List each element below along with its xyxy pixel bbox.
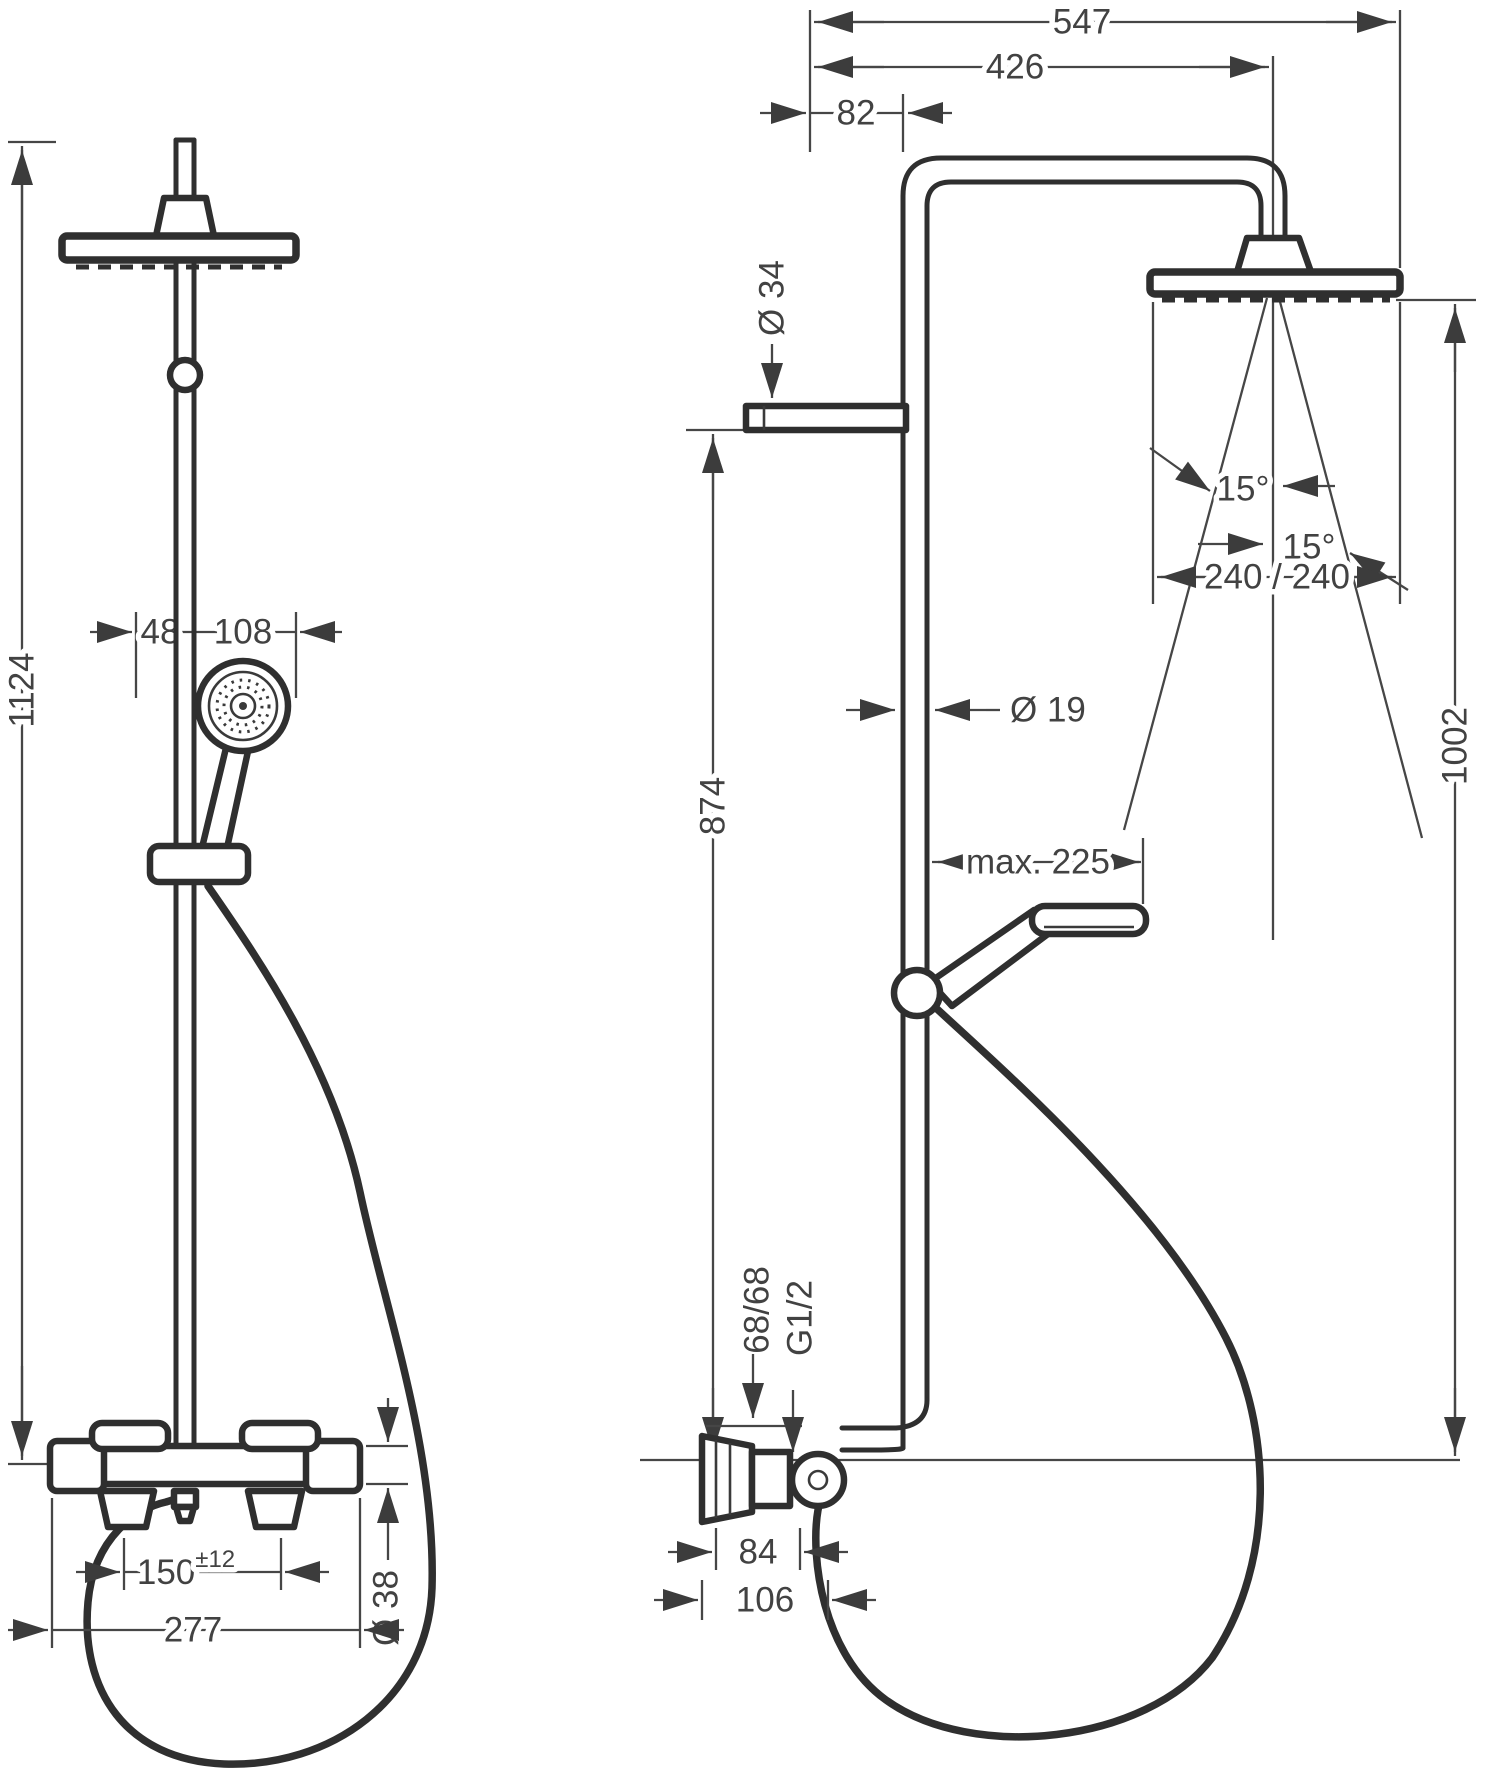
spray-footprint-label: 240 / 240	[1204, 558, 1350, 597]
dim-head-height-label: 1002	[1436, 707, 1475, 785]
supply-knob	[702, 1436, 752, 1522]
front-thermostat-valve	[50, 1423, 360, 1527]
dim-84-label: 84	[739, 1533, 778, 1572]
wall-connection-left	[100, 1491, 154, 1527]
dim-max-225-label: max. 225	[966, 843, 1110, 882]
shower-system-dimensional-drawing: 1124 48 108	[0, 0, 1500, 1792]
dim-total-height-label: 1124	[3, 652, 42, 727]
dim-hand-shower-projection: max. 225	[932, 838, 1143, 904]
head-plate	[1150, 272, 1400, 294]
pivot-ball	[170, 360, 200, 390]
supply-offset-label: 68/68	[738, 1266, 777, 1354]
side-supply-elbow	[702, 1436, 844, 1522]
side-hand-shower	[894, 906, 1146, 1016]
head-cone	[1237, 238, 1311, 272]
side-riser-and-arm	[842, 158, 1285, 1450]
dim-riser-height: 874	[694, 434, 733, 1456]
arm-inner	[927, 182, 1261, 238]
head-plate	[62, 236, 296, 260]
supply-thread-label: G1/2	[781, 1280, 820, 1356]
arm-outer	[903, 158, 1285, 238]
head-cone	[156, 198, 214, 236]
dim-426-label: 426	[986, 48, 1044, 87]
spray-angle-left-label: 15°	[1217, 470, 1270, 509]
dim-supply-spacing-label: 150±12	[137, 1546, 235, 1592]
side-overhead-shower	[1150, 238, 1400, 300]
dim-547-label: 547	[1053, 3, 1111, 42]
bracket-body	[746, 406, 906, 430]
dim-width-label: 108	[214, 613, 272, 652]
dim-valve-diameter: Ø 38	[366, 1398, 408, 1646]
dim-trim-width-label: 277	[164, 1611, 222, 1650]
dim-82-label: 82	[837, 94, 876, 133]
dim-trim-width: 277	[8, 1498, 404, 1650]
side-shower-hose	[816, 1008, 1260, 1737]
angle-arrow	[1150, 448, 1210, 491]
hand-shower-head	[1032, 906, 1146, 934]
temperature-handle	[92, 1423, 168, 1449]
technical-drawing-page: 1124 48 108	[0, 0, 1500, 1792]
dim-escutcheon-projection: 106	[654, 1580, 876, 1620]
slider-bracket	[150, 846, 248, 882]
hose-elbow	[792, 1454, 844, 1506]
dim-total-height: 1124	[3, 142, 57, 1464]
dim-valve-diameter-label: Ø 38	[367, 1570, 406, 1646]
dim-pipe-diameter-label: Ø 19	[1010, 691, 1086, 730]
dim-pipe-diameter: Ø 19	[846, 691, 1086, 730]
dim-106-label: 106	[736, 1581, 794, 1620]
dim-supply-connection: 68/68 G1/2	[706, 1266, 820, 1452]
pipe-bottom-bend	[842, 1448, 903, 1450]
wall-bracket	[746, 406, 906, 430]
dim-riser-height-label: 874	[694, 777, 733, 835]
hose-nipple-cone	[176, 1507, 194, 1521]
dim-head-projection: 547 426 82	[760, 3, 1400, 269]
front-riser-pipe	[176, 140, 194, 1446]
front-overhead-shower	[62, 198, 296, 267]
front-hand-shower	[150, 661, 288, 882]
flow-handle	[242, 1423, 318, 1449]
dim-bracket-diameter-label: Ø 34	[753, 260, 792, 336]
supply-stem	[752, 1452, 790, 1506]
spray-center	[239, 702, 247, 710]
front-view: 1124 48 108	[3, 140, 433, 1764]
dim-head-height: 1002	[1396, 300, 1476, 1456]
wall-connection-right	[248, 1491, 302, 1527]
side-view: 547 426 82 Ø 34 874	[640, 3, 1476, 1737]
dim-supply-spacing: 150±12	[76, 1538, 329, 1592]
pipe-bottom-bend	[842, 1400, 927, 1428]
spray-pattern: 15° 15° 240 / 240	[1124, 298, 1422, 940]
